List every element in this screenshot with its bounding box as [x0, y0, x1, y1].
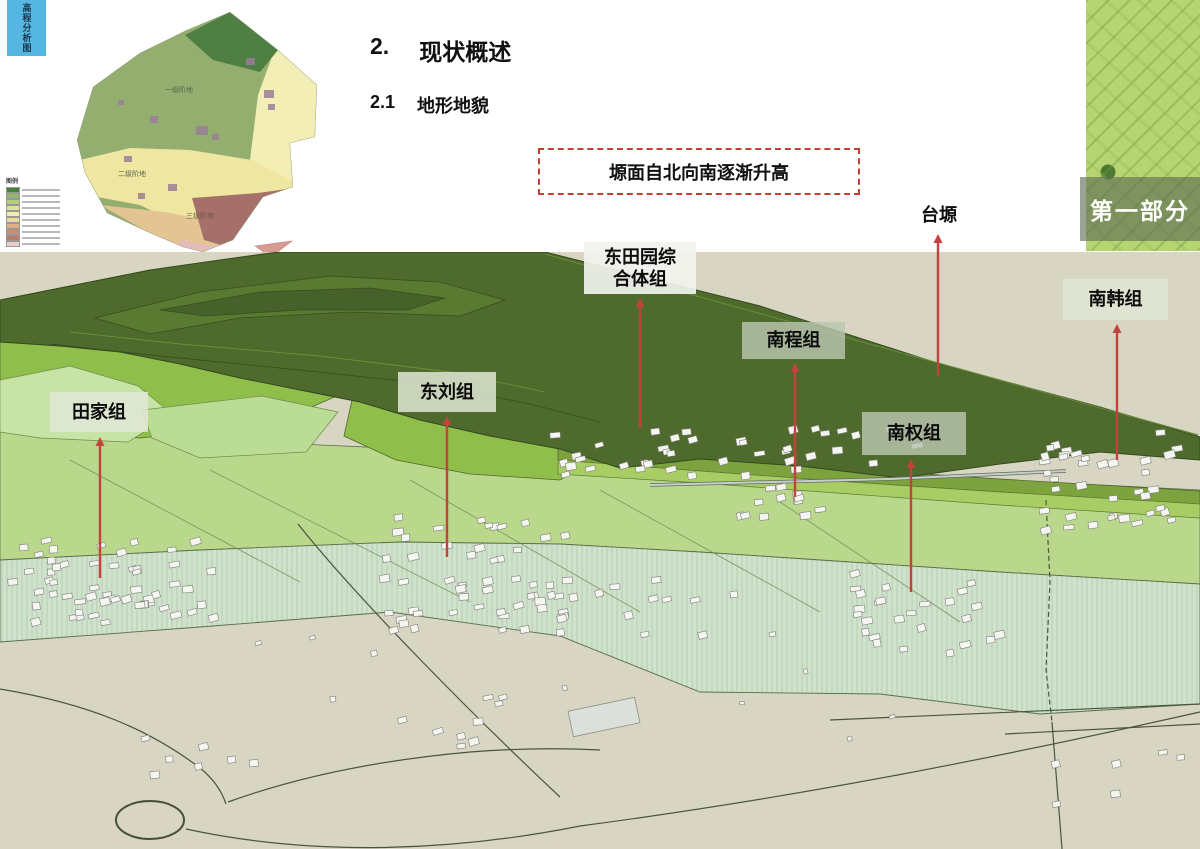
building [535, 597, 546, 605]
part-badge: 第一部分 [1080, 177, 1200, 241]
building [529, 581, 537, 588]
legend-range-text [22, 201, 60, 203]
building [379, 574, 390, 583]
building [682, 428, 692, 435]
callout-text: 塬面自北向南逐渐升高 [609, 159, 789, 185]
legend-range-text [22, 243, 60, 245]
building [249, 759, 258, 767]
building [1111, 760, 1121, 769]
building [1050, 476, 1059, 481]
legend-swatch [6, 241, 20, 247]
building [894, 615, 905, 623]
building [394, 514, 403, 522]
section-title: 现状概述 [419, 33, 511, 67]
legend-row-3 [6, 206, 70, 210]
legend-rows [6, 188, 70, 246]
building [399, 620, 409, 628]
legend-range-text [22, 219, 60, 221]
terrain-3d-map [0, 252, 1200, 849]
legend-range-text [22, 189, 60, 191]
map-label-text: 台塬 [921, 204, 957, 227]
building [459, 593, 469, 600]
building [740, 701, 745, 704]
building [527, 592, 535, 599]
building [131, 586, 143, 594]
building [882, 583, 891, 591]
building [370, 650, 377, 657]
building [49, 545, 58, 553]
building [550, 432, 561, 438]
building [166, 756, 174, 763]
building [986, 636, 995, 643]
building [413, 610, 423, 616]
legend-range-text [22, 213, 60, 215]
legend-row-0 [6, 188, 70, 192]
legend-row-7 [6, 230, 70, 234]
building [1039, 507, 1050, 514]
building [182, 585, 193, 593]
building [739, 439, 747, 445]
legend-row-5 [6, 218, 70, 222]
building [803, 669, 808, 674]
building [1111, 790, 1121, 798]
building [197, 601, 206, 609]
legend-row-6 [6, 224, 70, 228]
building [109, 563, 119, 569]
subsection-number: 2.1 [370, 92, 395, 118]
callout-box: 塬面自北向南逐渐升高 [538, 148, 860, 195]
building [832, 446, 843, 454]
legend-row-2 [6, 200, 70, 204]
building [769, 632, 776, 638]
building [556, 629, 564, 637]
building [1140, 492, 1150, 500]
building [32, 602, 40, 610]
building [1119, 514, 1131, 523]
building [730, 591, 738, 598]
building [441, 542, 452, 549]
terrain-svg [0, 252, 1200, 849]
building [457, 743, 466, 749]
legend-range-text [22, 195, 60, 197]
building [1081, 455, 1090, 461]
subsection-title: 地形地貌 [417, 92, 489, 118]
building [1141, 469, 1149, 476]
building [561, 532, 570, 540]
building [847, 736, 852, 741]
legend-range-text [22, 231, 60, 233]
building [754, 499, 763, 506]
building [330, 696, 336, 702]
building [24, 568, 34, 574]
building [1088, 521, 1098, 529]
building [563, 685, 568, 690]
building [800, 512, 811, 520]
building [687, 472, 696, 480]
building [89, 585, 99, 591]
building [1044, 470, 1052, 476]
building [946, 649, 955, 657]
building [740, 512, 750, 519]
building [610, 584, 620, 590]
building [433, 525, 444, 531]
legend-range-text [22, 237, 60, 239]
area-label-terrace3: 三级阶地 [186, 211, 214, 220]
building [101, 619, 111, 625]
legend-range-text [22, 207, 60, 209]
building [759, 513, 769, 521]
building [945, 598, 954, 606]
slide: 高程分析图 一级阶地 二级阶地 三级阶地 [0, 0, 1200, 849]
part-badge-label: 第一部分 [1090, 192, 1190, 226]
building [741, 472, 750, 480]
building [1051, 486, 1060, 492]
building [624, 611, 634, 620]
section-heading: 2. 现状概述 [370, 33, 511, 67]
building [1177, 755, 1185, 761]
legend-row-4 [6, 212, 70, 216]
legend-title: 图例 [6, 176, 70, 185]
building [906, 610, 916, 615]
building [75, 609, 83, 616]
legend-row-9 [6, 242, 70, 246]
building [455, 585, 466, 594]
arrow-head-taiyuan [934, 234, 943, 243]
building [50, 579, 58, 585]
building [511, 576, 520, 583]
area-label-terrace2: 二级阶地 [118, 169, 146, 178]
building [861, 628, 869, 636]
building [485, 523, 493, 529]
building [651, 428, 661, 435]
building [791, 466, 802, 473]
building [1063, 525, 1074, 531]
building [562, 577, 573, 584]
building [815, 507, 826, 513]
building [569, 593, 578, 602]
building [1109, 495, 1118, 501]
building [194, 763, 202, 771]
building [869, 460, 878, 467]
building [401, 534, 410, 542]
building [207, 568, 216, 575]
building [495, 701, 503, 707]
legend-range-text [22, 225, 60, 227]
building [52, 563, 61, 571]
building [49, 591, 58, 598]
building [651, 576, 661, 583]
building [135, 602, 145, 609]
building [19, 544, 28, 551]
legend-row-8 [6, 236, 70, 240]
building [765, 485, 775, 491]
map-label-taiyuan: 台塬 [908, 200, 970, 230]
building [900, 646, 908, 652]
building [75, 599, 86, 605]
building [667, 450, 675, 457]
subsection-heading: 2.1 地形地貌 [370, 92, 489, 118]
building [410, 624, 419, 633]
building [1158, 749, 1168, 755]
building [636, 466, 646, 472]
building [853, 611, 862, 618]
building [8, 579, 18, 586]
building [546, 582, 554, 589]
building [820, 430, 830, 436]
area-label-terrace1: 一级阶地 [165, 85, 193, 94]
building [167, 547, 176, 553]
section-number: 2. [370, 33, 389, 67]
building [150, 771, 160, 779]
legend-row-1 [6, 194, 70, 198]
building [34, 588, 44, 595]
building [919, 601, 930, 607]
elevation-legend: 图例 [6, 176, 70, 248]
building [227, 756, 236, 764]
building [520, 625, 530, 633]
building [513, 547, 521, 553]
building [565, 462, 576, 471]
building [382, 555, 390, 563]
building [467, 551, 477, 559]
building [1156, 429, 1166, 435]
building [850, 586, 861, 592]
building [1046, 444, 1054, 451]
building [47, 557, 55, 564]
building [473, 718, 483, 726]
building [385, 610, 394, 616]
